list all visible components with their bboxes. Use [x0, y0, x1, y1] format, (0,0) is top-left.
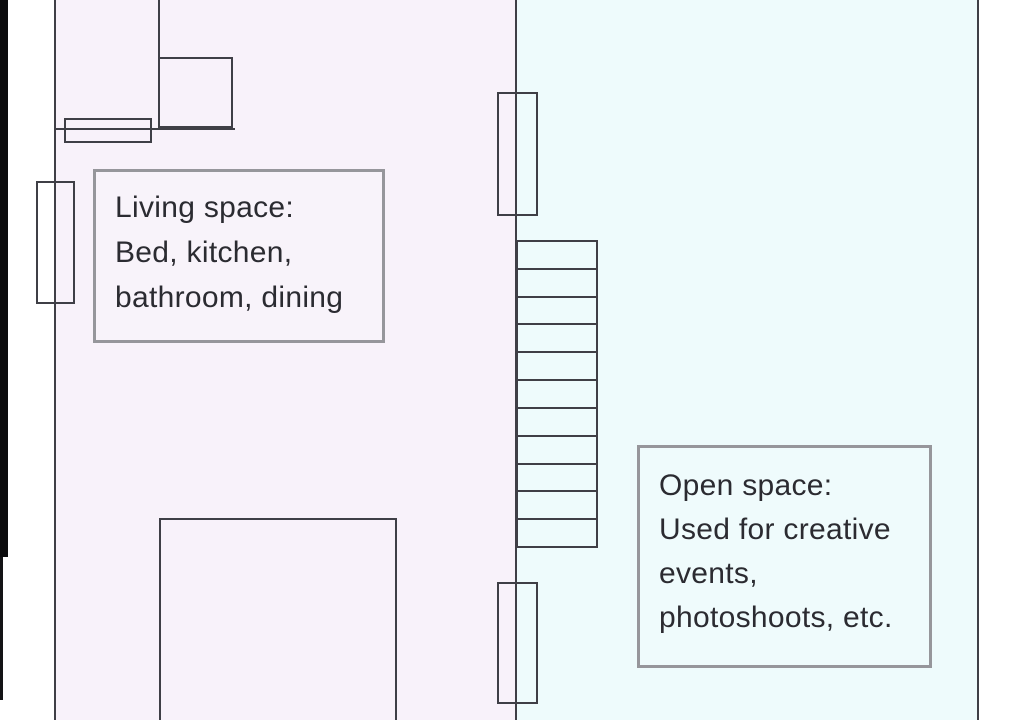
divider-door-bottom	[497, 582, 538, 704]
right-exterior-wall	[977, 0, 979, 720]
stair-step	[518, 296, 596, 324]
top-left-window	[64, 118, 152, 143]
stair-step	[518, 351, 596, 379]
bottom-left-fixture	[159, 518, 397, 720]
open-space-label-line: events,	[659, 552, 910, 596]
living-space-label-box: Living space: Bed, kitchen, bathroom, di…	[93, 169, 385, 343]
staircase	[516, 240, 598, 548]
open-space-label-line: photoshoots, etc.	[659, 596, 910, 640]
floor-plan: Living space: Bed, kitchen, bathroom, di…	[0, 0, 1024, 720]
open-space-label-box: Open space: Used for creative events, ph…	[637, 445, 932, 668]
stair-step	[518, 379, 596, 407]
open-space-label-line: Open space:	[659, 464, 910, 508]
left-edge-black-strip-thin	[0, 557, 3, 700]
stair-step	[518, 463, 596, 491]
outside-left-margin	[0, 0, 56, 720]
divider-door-top	[497, 92, 538, 216]
open-space-label-line: Used for creative	[659, 508, 910, 552]
stair-step	[518, 268, 596, 296]
stair-step	[518, 490, 596, 518]
outside-right-margin	[979, 0, 1024, 720]
top-left-fixture-square	[158, 57, 233, 128]
stair-step	[518, 323, 596, 351]
left-edge-black-strip	[0, 0, 8, 557]
stair-step	[518, 242, 596, 268]
stair-step	[518, 407, 596, 435]
left-exterior-wall	[54, 0, 56, 720]
stair-step	[518, 435, 596, 463]
living-space-label-line: bathroom, dining	[115, 275, 363, 320]
stair-step	[518, 518, 596, 546]
living-space-label-line: Living space:	[115, 185, 363, 230]
living-space-label-line: Bed, kitchen,	[115, 230, 363, 275]
left-wall-door	[36, 181, 75, 304]
